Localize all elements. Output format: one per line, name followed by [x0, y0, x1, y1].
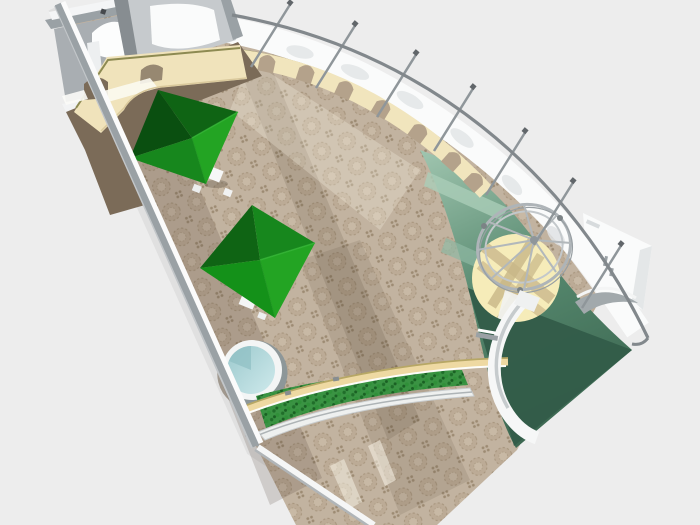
dome-knob-1 [481, 223, 487, 229]
right-room-fixture [150, 4, 220, 49]
dome-knob-2 [557, 215, 563, 221]
render-canvas [0, 0, 700, 525]
floor-plan-render [0, 0, 700, 525]
